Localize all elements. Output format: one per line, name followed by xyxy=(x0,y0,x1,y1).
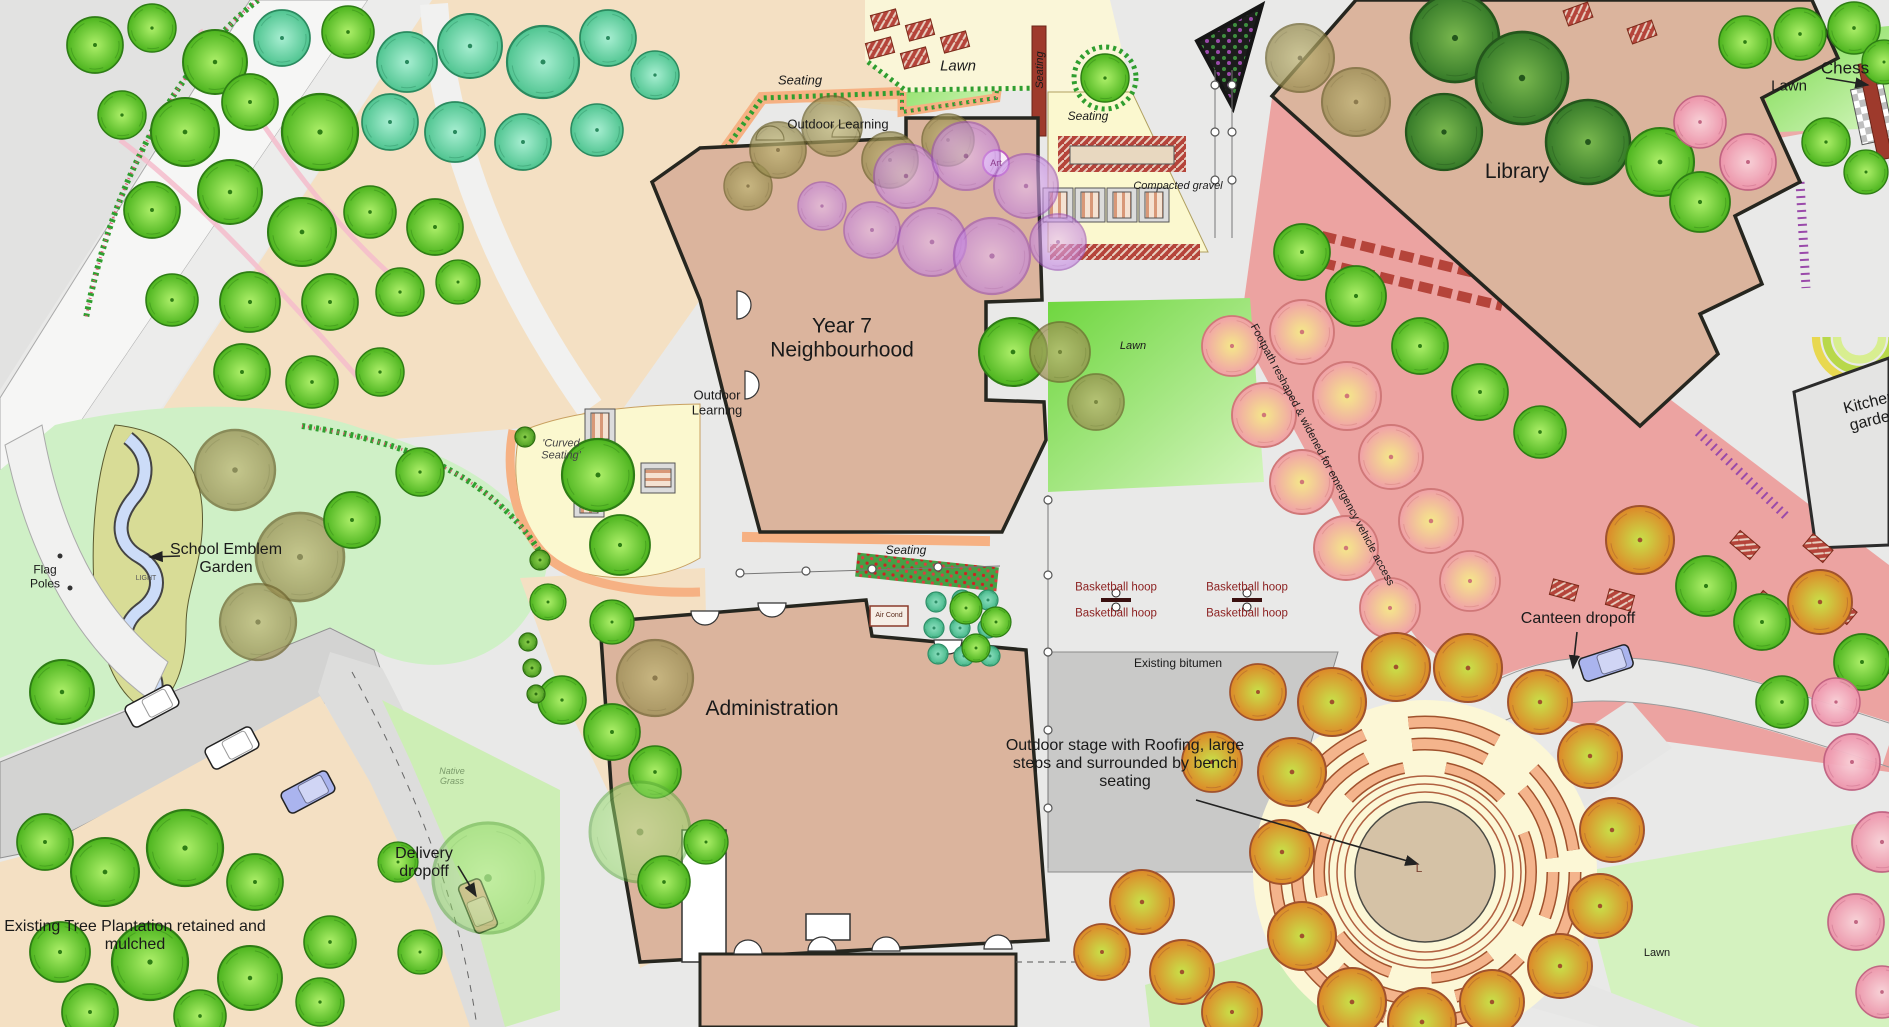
tree-g xyxy=(638,856,690,908)
tree-g xyxy=(1081,54,1129,102)
tree-o xyxy=(1266,24,1334,92)
tree-g xyxy=(1756,676,1808,728)
tree-g xyxy=(128,4,176,52)
tree-o xyxy=(1068,374,1124,430)
label-year7: Year 7 Neighbourhood xyxy=(752,314,932,361)
tree-a xyxy=(1434,634,1502,702)
tree-g xyxy=(1844,150,1888,194)
tree-g xyxy=(1392,318,1448,374)
tree-tl xyxy=(926,592,946,612)
tree-g xyxy=(198,160,262,224)
tree-p xyxy=(1030,214,1086,270)
tree-d xyxy=(1476,32,1568,124)
tree-pk xyxy=(1824,734,1880,790)
tree-g xyxy=(218,946,282,1010)
label-outdoor-learning-left: Outdoor Learning xyxy=(670,388,765,417)
tree-t xyxy=(362,94,418,150)
label-outdoor-learning-top: Outdoor Learning xyxy=(787,118,888,133)
tree-a xyxy=(1788,570,1852,634)
flag-pole xyxy=(58,554,63,559)
tree-s xyxy=(519,633,537,651)
label-stage-center: L xyxy=(1416,862,1423,876)
tree-f xyxy=(1359,425,1423,489)
tree-a xyxy=(1508,670,1572,734)
tree-d xyxy=(1546,100,1630,184)
label-basketball-hoop-1: Basketball hoop xyxy=(1075,582,1157,595)
tree-t xyxy=(571,104,623,156)
tree-g xyxy=(151,98,219,166)
tree-t xyxy=(254,10,310,66)
tree-a xyxy=(1606,506,1674,574)
label-flag-poles: Flag Poles xyxy=(20,563,70,590)
label-native-grass: Native Grass xyxy=(427,766,477,786)
label-curved-seating: 'Curved Seating' xyxy=(530,438,592,463)
picnic-table xyxy=(1107,188,1137,222)
tree-a xyxy=(1074,924,1130,980)
tree-a xyxy=(1150,940,1214,1004)
picnic-table xyxy=(641,463,675,493)
tree-g xyxy=(398,930,442,974)
tree-g xyxy=(1734,594,1790,650)
label-seating-vertical: Seating xyxy=(1034,51,1046,88)
tree-g xyxy=(98,91,146,139)
tree-g xyxy=(1719,16,1771,68)
tree-t xyxy=(438,14,502,78)
tree-g xyxy=(268,198,336,266)
tree-g xyxy=(322,6,374,58)
tree-g xyxy=(146,274,198,326)
label-seating-mid: Seating xyxy=(886,544,927,558)
tree-g xyxy=(304,916,356,968)
tree-tl xyxy=(928,644,948,664)
tree-g xyxy=(950,592,982,624)
tree-a xyxy=(1258,738,1326,806)
tree-a xyxy=(1250,820,1314,884)
label-compacted-gravel: Compacted gravel xyxy=(1133,180,1222,192)
tree-g xyxy=(590,515,650,575)
tree-g xyxy=(1326,266,1386,326)
tree-pk xyxy=(1812,678,1860,726)
tree-g xyxy=(1774,8,1826,60)
tree-g xyxy=(530,584,566,620)
label-canteen-dropoff: Canteen dropoff xyxy=(1521,610,1635,628)
tree-o xyxy=(195,430,275,510)
tree-a xyxy=(1460,970,1524,1027)
label-library: Library xyxy=(1485,160,1549,184)
tree-g xyxy=(286,356,338,408)
tree-o xyxy=(1030,322,1090,382)
tree-g xyxy=(1670,172,1730,232)
tree-g xyxy=(220,272,280,332)
tree-p xyxy=(994,154,1058,218)
tree-s xyxy=(523,659,541,677)
tree-t xyxy=(580,10,636,66)
tree-g xyxy=(282,94,358,170)
tree-g xyxy=(396,448,444,496)
tree-g xyxy=(1514,406,1566,458)
label-basketball-hoop-3: Basketball hoop xyxy=(1075,608,1157,621)
tree-f xyxy=(1440,551,1500,611)
label-tree-plantation: Existing Tree Plantation retained and mu… xyxy=(0,918,275,954)
label-delivery-dropoff: Delivery dropoff xyxy=(384,845,464,881)
site-plan-drawing xyxy=(0,0,1889,1027)
tree-a xyxy=(1268,902,1336,970)
tree-o xyxy=(1322,68,1390,136)
label-administration: Administration xyxy=(705,697,838,721)
label-existing-bitumen: Existing bitumen xyxy=(1134,657,1222,671)
tree-g xyxy=(962,634,990,662)
tree-f xyxy=(1360,578,1420,638)
tree-s xyxy=(530,550,550,570)
tree-a xyxy=(1230,664,1286,720)
tree-a xyxy=(1568,874,1632,938)
site-plan: Seating Lawn Outdoor Learning Art Seatin… xyxy=(0,0,1889,1027)
tree-g xyxy=(227,854,283,910)
label-air-cond: Air Cond xyxy=(875,612,902,620)
tree-p xyxy=(874,144,938,208)
tree-a xyxy=(1528,934,1592,998)
picnic-table xyxy=(1075,188,1105,222)
tree-g xyxy=(17,814,73,870)
tree-a xyxy=(1110,870,1174,934)
tree-g xyxy=(1452,364,1508,420)
tree-p xyxy=(954,218,1030,294)
tree-g xyxy=(147,810,223,886)
tree-g xyxy=(981,607,1011,637)
tree-f xyxy=(1399,489,1463,553)
label-school-emblem-garden: School Emblem Garden xyxy=(169,541,284,577)
tree-g xyxy=(1274,224,1330,280)
tree-g xyxy=(538,676,586,724)
tree-f xyxy=(1313,362,1381,430)
building-lower-wing xyxy=(700,954,1016,1027)
label-lawn-stage: Lawn xyxy=(1644,947,1670,959)
tree-f xyxy=(1270,300,1334,364)
tree-g xyxy=(71,838,139,906)
tree-g xyxy=(590,600,634,644)
tree-g xyxy=(1676,556,1736,616)
tree-tl xyxy=(924,618,944,638)
tree-t xyxy=(507,26,579,98)
tree-p xyxy=(932,122,1000,190)
label-lawn-top: Lawn xyxy=(940,59,976,76)
tree-a xyxy=(1318,968,1386,1027)
tree-pk xyxy=(1828,894,1884,950)
tree-g xyxy=(296,978,344,1026)
tree-p xyxy=(844,202,900,258)
tree-pk xyxy=(1720,134,1776,190)
tree-g xyxy=(356,348,404,396)
tree-g xyxy=(1802,118,1850,166)
tree-o xyxy=(220,584,296,660)
tree-g xyxy=(376,268,424,316)
tree-p xyxy=(798,182,846,230)
label-basketball-hoop-4: Basketball hoop xyxy=(1206,608,1288,621)
tree-a xyxy=(1558,724,1622,788)
tree-g xyxy=(67,17,123,73)
tree-a xyxy=(1362,633,1430,701)
tree-g xyxy=(222,74,278,130)
tree-t xyxy=(377,32,437,92)
label-lawn-chess: Lawn xyxy=(1771,79,1807,96)
label-art: Art xyxy=(990,158,1002,168)
tree-g xyxy=(407,199,463,255)
tree-g xyxy=(214,344,270,400)
tree-a xyxy=(1580,798,1644,862)
tree-g xyxy=(324,492,380,548)
tree-t xyxy=(631,51,679,99)
tree-g xyxy=(436,260,480,304)
tree-s xyxy=(527,685,545,703)
tree-g xyxy=(124,182,180,238)
tree-t xyxy=(425,102,485,162)
tree-a xyxy=(1298,668,1366,736)
tree-pk xyxy=(1674,96,1726,148)
tree-g xyxy=(302,274,358,330)
picnic-table xyxy=(1139,188,1169,222)
tree-g xyxy=(344,186,396,238)
tree-o xyxy=(617,640,693,716)
tree-g xyxy=(584,704,640,760)
label-lawn-mid: Lawn xyxy=(1120,340,1146,352)
tree-d xyxy=(1406,94,1482,170)
label-basketball-hoop-2: Basketball hoop xyxy=(1206,582,1288,595)
tree-g xyxy=(684,820,728,864)
label-seating-top: Seating xyxy=(778,74,822,89)
tree-t xyxy=(495,114,551,170)
label-seating-gravel: Seating xyxy=(1068,110,1109,124)
label-outdoor-stage: Outdoor stage with Roofing, large steps … xyxy=(1000,737,1250,791)
label-chess: Chess xyxy=(1821,58,1869,77)
tree-g xyxy=(30,660,94,724)
label-light: LIGHT xyxy=(136,575,157,583)
